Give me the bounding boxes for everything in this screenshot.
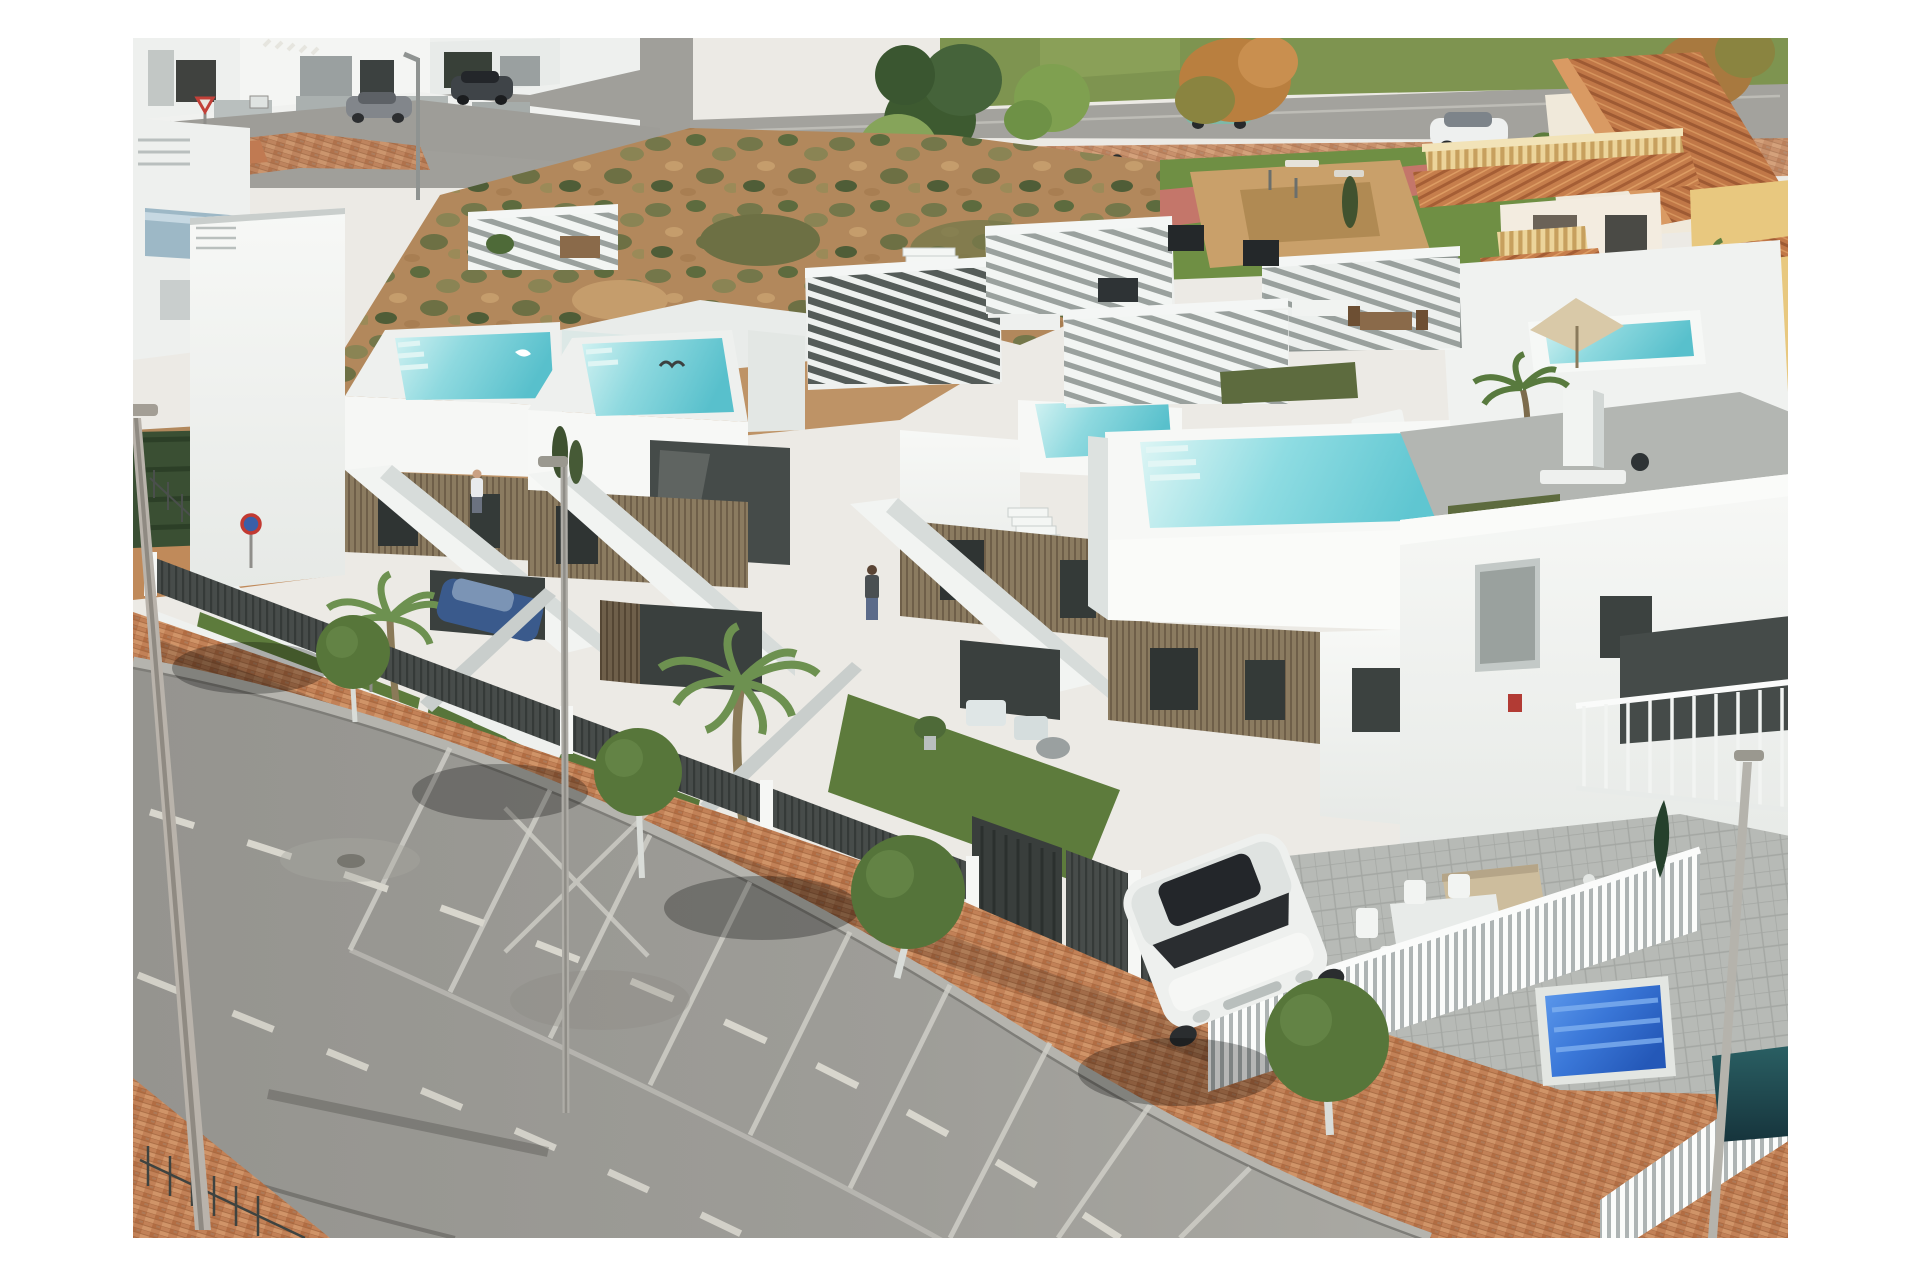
roof-black-seat	[1098, 278, 1138, 302]
topiary-tree-2	[594, 728, 682, 816]
aerial-photo	[133, 38, 1788, 1238]
blue-covered-pool	[1535, 976, 1676, 1086]
terrace-bench	[1540, 470, 1626, 484]
pergola-rear	[1262, 258, 1460, 350]
roof-dining-table	[1360, 312, 1412, 330]
chimney-cap	[1168, 225, 1204, 251]
topiary-tree-3	[851, 835, 965, 949]
roof-table-unit1	[560, 236, 600, 258]
chimney	[1563, 390, 1593, 466]
cypress-tree	[1342, 176, 1358, 228]
park-bench	[1285, 160, 1319, 167]
cypress-small	[569, 440, 583, 484]
balcony-glass	[1620, 616, 1788, 744]
pergola-unit3	[986, 226, 1172, 314]
roof-plant	[486, 234, 514, 254]
manhole	[337, 854, 365, 868]
pergola-unit2	[808, 268, 1000, 384]
topiary-tree-4	[1265, 978, 1389, 1102]
photo-canvas	[133, 38, 1788, 1238]
background-car-dark-suv	[451, 71, 513, 105]
utility-box	[1508, 694, 1522, 712]
chimney-cap	[1243, 240, 1279, 266]
page-background	[0, 0, 1920, 1280]
park-bench-2	[1334, 170, 1364, 177]
